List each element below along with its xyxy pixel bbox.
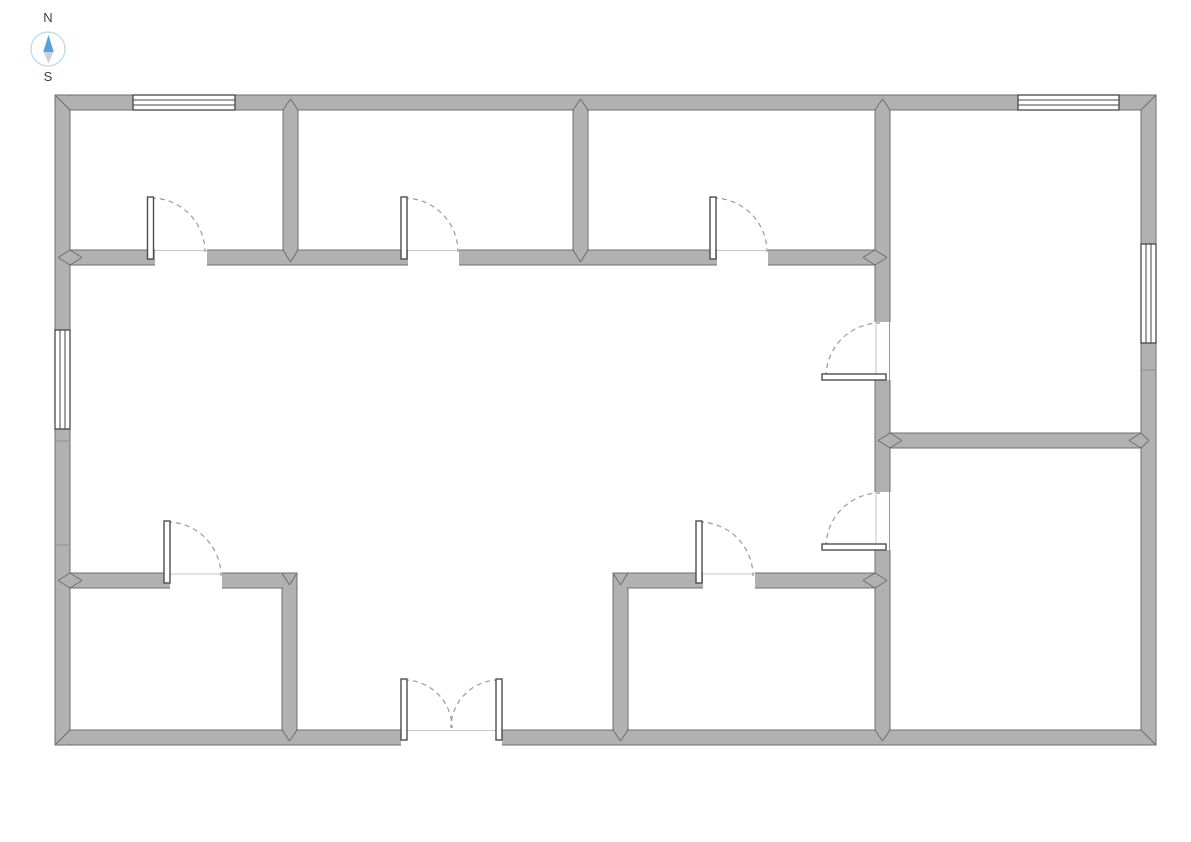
door-bottom-mid-room-leaf xyxy=(696,521,702,583)
door-upper-right-room-swing-arc xyxy=(826,323,880,377)
wall-joint-patch xyxy=(283,587,296,590)
window-room1-north xyxy=(133,95,235,110)
walls-layer xyxy=(55,95,1156,745)
window-upper-right-room-east xyxy=(1141,244,1156,343)
door-bottom-mid-room-swing-arc xyxy=(699,522,753,576)
door-sills-layer xyxy=(155,251,890,731)
floor-plan-canvas: N S xyxy=(0,0,1191,842)
wall-joint-patch xyxy=(69,574,72,587)
wall-joint-patch xyxy=(1140,434,1143,447)
wall-joint-patch xyxy=(1140,96,1143,109)
window-hall-west xyxy=(55,330,70,429)
door-room3-leaf xyxy=(710,197,716,259)
wall-joint-patch xyxy=(1142,109,1155,112)
compass-south-label: S xyxy=(44,69,53,84)
wall-joint-patch xyxy=(574,249,587,252)
doors-layer xyxy=(148,197,887,740)
wall-bottom-left-room-right xyxy=(282,588,297,730)
wall-joint-patch xyxy=(614,587,627,590)
window-upper-right-room-north xyxy=(1018,95,1119,110)
door-openings-layer xyxy=(155,248,892,746)
wall-joint-patch xyxy=(874,574,877,587)
compass-north-label: N xyxy=(43,10,52,25)
wall-joint-patch xyxy=(69,731,72,744)
wall-joint-patch xyxy=(284,109,297,112)
wall-joint-patch xyxy=(889,434,892,447)
door-bottom-left-room-swing-arc xyxy=(167,522,221,576)
wall-joint-patch xyxy=(614,729,627,732)
door-lower-right-room-leaf xyxy=(822,544,886,550)
wall-joint-patch xyxy=(876,109,889,112)
wall-bottom-mid-room-left xyxy=(613,588,628,730)
entrance-door-left-swing-arc xyxy=(404,680,452,728)
wall-joint-patch xyxy=(1142,729,1155,732)
outer-wall-right xyxy=(1141,95,1156,745)
door-room3-swing-arc xyxy=(713,198,767,252)
wall-right-rooms-left xyxy=(875,110,890,730)
wall-joint-patch xyxy=(574,109,587,112)
wall-merge-layer xyxy=(56,96,1155,744)
wall-joint-patch xyxy=(56,109,69,112)
door-room2-leaf xyxy=(401,197,407,259)
wall-joint-patch xyxy=(283,729,296,732)
floor-plan-page: N S xyxy=(0,0,1191,842)
wall-joint-patch xyxy=(876,729,889,732)
wall-joint-patch xyxy=(56,729,69,732)
compass-rose: N S xyxy=(31,10,65,84)
door-lower-right-room-swing-arc xyxy=(826,493,880,547)
wall-joint-patch xyxy=(874,251,877,264)
wall-joints-layer xyxy=(55,95,1156,745)
door-upper-right-room-leaf xyxy=(822,374,886,380)
entrance-door-left-leaf xyxy=(401,679,407,740)
wall-joint-patch xyxy=(69,96,72,109)
door-room1-swing-arc xyxy=(151,198,205,252)
wall-right-rooms-divider xyxy=(890,433,1141,448)
wall-joint-patch xyxy=(1140,731,1143,744)
door-bottom-left-room-leaf xyxy=(164,521,170,583)
wall-joint-patch xyxy=(69,251,72,264)
door-room1-leaf xyxy=(148,197,154,259)
wall-room2-room3-divider xyxy=(573,110,588,250)
wall-seams-layer xyxy=(55,370,1156,545)
wall-joint-patch xyxy=(284,249,297,252)
wall-room1-room2-divider xyxy=(283,110,298,250)
entrance-door-right-swing-arc xyxy=(451,680,499,728)
entrance-door-right-leaf xyxy=(496,679,502,740)
door-room2-swing-arc xyxy=(404,198,458,252)
outer-wall-bottom xyxy=(55,730,1156,745)
